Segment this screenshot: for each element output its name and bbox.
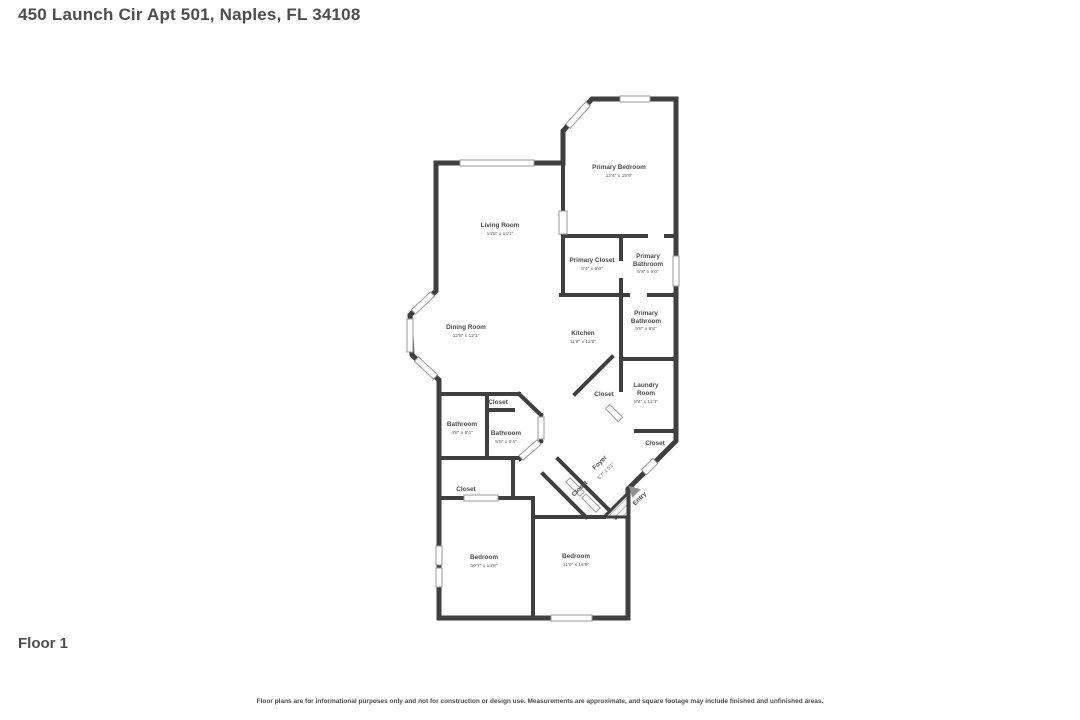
room-label-closet-laundry: Closet bbox=[645, 440, 665, 447]
room-dims-primary-bathroom-lower: 5'8" x 6'8" bbox=[635, 326, 657, 332]
entry-hatch bbox=[604, 493, 628, 517]
room-label-primary-bathroom-lower-2: Bathroom bbox=[631, 318, 661, 325]
room-dims-primary-closet: 6'4" x 6'0" bbox=[581, 266, 603, 272]
room-dims-bathroom-left: 4'8" x 8'4" bbox=[451, 430, 473, 436]
room-dims-bedroom-right: 11'0" x 16'9" bbox=[563, 562, 590, 568]
room-label-primary-closet: Primary Closet bbox=[569, 257, 615, 264]
room-dims-kitchen: 11'8" x 12'6" bbox=[570, 339, 597, 345]
room-dims-primary-bedroom: 12'4" x 15'9" bbox=[606, 173, 633, 179]
room-label-laundry-1: Laundry bbox=[633, 382, 659, 389]
room-label-kitchen: Kitchen bbox=[571, 330, 595, 337]
room-label-living-room: Living Room bbox=[481, 222, 520, 229]
room-dims-primary-bathroom-upper: 5'8" x 6'0" bbox=[637, 269, 659, 275]
room-label-closet-kitchen: Closet bbox=[594, 391, 614, 398]
room-label-bathroom-right: Bathroom bbox=[491, 430, 521, 437]
room-labels: Primary Bedroom 12'4" x 15'9" Living Roo… bbox=[446, 164, 666, 569]
room-label-bedroom-right: Bedroom bbox=[562, 553, 590, 560]
room-dims-dining-room: 12'8" x 12'1" bbox=[453, 333, 480, 339]
room-label-primary-bathroom-upper-2: Bathroom bbox=[633, 261, 663, 268]
room-label-closet-bath-top: Closet bbox=[488, 399, 508, 406]
room-dims-bedroom-left: 10'7" x 13'9" bbox=[471, 563, 498, 569]
room-label-closet-hall: Closet bbox=[456, 486, 476, 493]
room-label-bathroom-left: Bathroom bbox=[447, 421, 477, 428]
room-label-bedroom-left: Bedroom bbox=[470, 554, 498, 561]
room-dims-laundry: 8'4" x 11'3" bbox=[634, 399, 658, 405]
floorplan-drawing: Primary Bedroom 12'4" x 15'9" Living Roo… bbox=[0, 0, 1080, 720]
room-dims-living-room: 14'5" x 14'1" bbox=[487, 231, 514, 237]
room-dims-bathroom-right: 5'5" x 6'4" bbox=[495, 439, 517, 445]
room-label-primary-bathroom-upper-1: Primary bbox=[636, 253, 660, 260]
room-label-dining-room: Dining Room bbox=[446, 324, 486, 331]
room-label-laundry-2: Room bbox=[637, 390, 655, 397]
floor-label: Floor 1 bbox=[18, 635, 68, 652]
disclaimer-text: Floor plans are for informational purpos… bbox=[0, 698, 1080, 705]
interior-walls bbox=[439, 131, 676, 618]
room-label-primary-bathroom-lower-1: Primary bbox=[634, 310, 658, 317]
floorplan-page: 450 Launch Cir Apt 501, Naples, FL 34108 bbox=[0, 0, 1080, 720]
room-label-primary-bedroom: Primary Bedroom bbox=[592, 164, 646, 171]
